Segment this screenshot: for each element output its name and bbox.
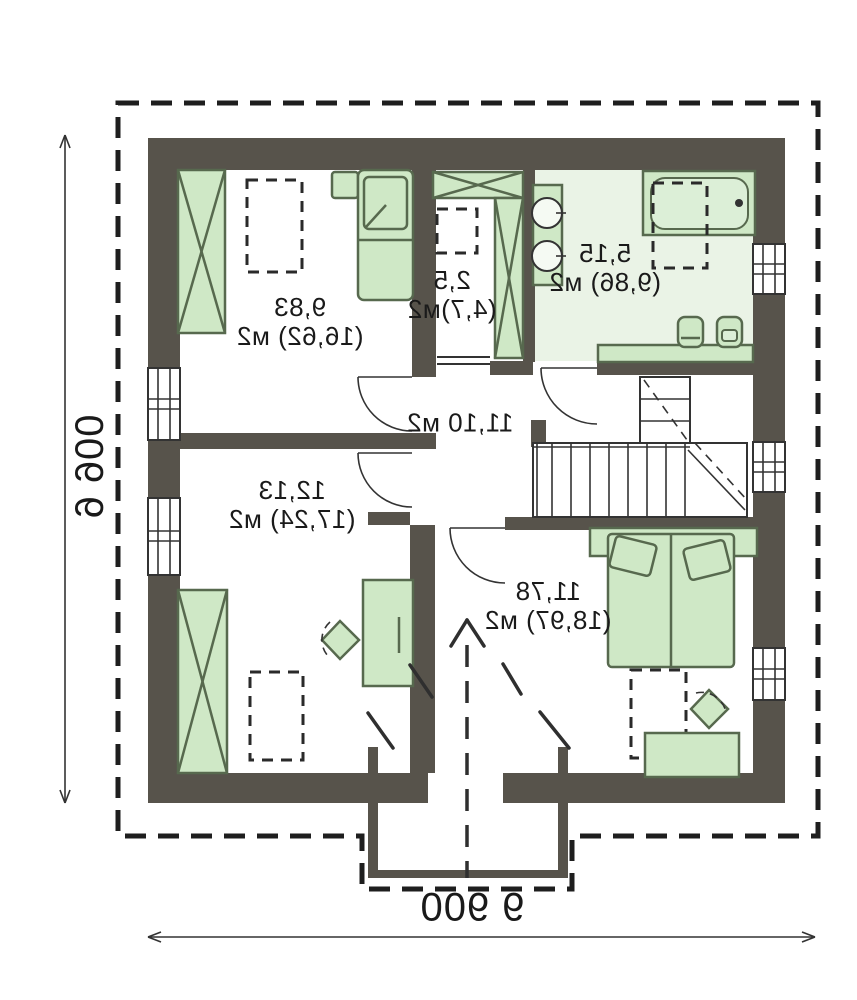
wardrobe-bedroom-bottom-left [178,590,227,773]
nightstand [332,172,358,198]
desk-bedroom-bottom-right [645,733,739,777]
desk-bedroom-bottom-left [363,580,413,686]
toilet [678,317,703,347]
room-area-total: (17,24) м2 [229,505,356,534]
door-bedroom-bottom-right [450,528,505,583]
window-right-lower [753,648,785,700]
wardrobe-closet-side [495,198,523,358]
wardrobe-bedroom-top-left [178,170,225,333]
room-label-hall: 11,10 м2 [407,408,514,437]
room-area: 12,13 [229,476,356,505]
room-area: 9,83 [237,293,364,322]
wardrobe-closet-top [433,172,523,198]
dimension-line-bottom [148,932,815,942]
room-label-bathroom: 5,15 (9,86) м2 [549,239,661,297]
window-right-middle [753,442,785,492]
slope-direction-arrow [451,620,484,878]
room-area-total: (4,7)м2 [407,295,496,324]
window-left-lower [148,498,180,575]
room-label-bedroom-bottom-left: 12,13 (17,24) м2 [229,476,356,534]
dimension-label-left: 9 900 [66,413,111,518]
roof-window-bedroom-top-left [247,180,302,272]
room-area: 2,5 [407,266,496,295]
dimension-label-bottom: 9 900 [419,886,524,931]
floor-plan-drawing [0,0,857,1000]
bathtub [643,171,755,235]
closet-threshold [437,357,490,364]
room-label-closet: 2,5 (4,7)м2 [407,266,496,324]
door-bedroom-top-left [358,377,412,431]
bidet [717,317,742,347]
single-bed [358,170,413,300]
double-bed [590,528,757,667]
room-area: 5,15 [549,239,661,268]
room-area-total: (9,86) м2 [549,268,661,297]
door-bathroom [541,368,597,424]
door-bedroom-bottom-left [358,453,412,507]
room-label-bedroom-bottom-right: 11,78 (18,97) м2 [485,577,612,635]
roof-window-bedroom-bottom-left [250,672,303,760]
chair-bedroom-bottom-right [691,690,728,728]
room-label-bedroom-top-left: 9,83 (16,62) м2 [237,293,364,351]
staircase [533,377,747,517]
window-right-upper [753,244,785,294]
chair-bedroom-bottom-left [322,621,359,659]
floor-plan-page: 9,83 (16,62) м2 2,5 (4,7)м2 5,15 (9,86) … [0,0,857,1000]
window-left-upper [148,368,180,440]
room-area: 11,10 м2 [407,408,514,437]
roof-window-closet [437,209,477,253]
room-area: 11,78 [485,577,612,606]
room-area-total: (16,62) м2 [237,322,364,351]
room-area-total: (18,97) м2 [485,606,612,635]
